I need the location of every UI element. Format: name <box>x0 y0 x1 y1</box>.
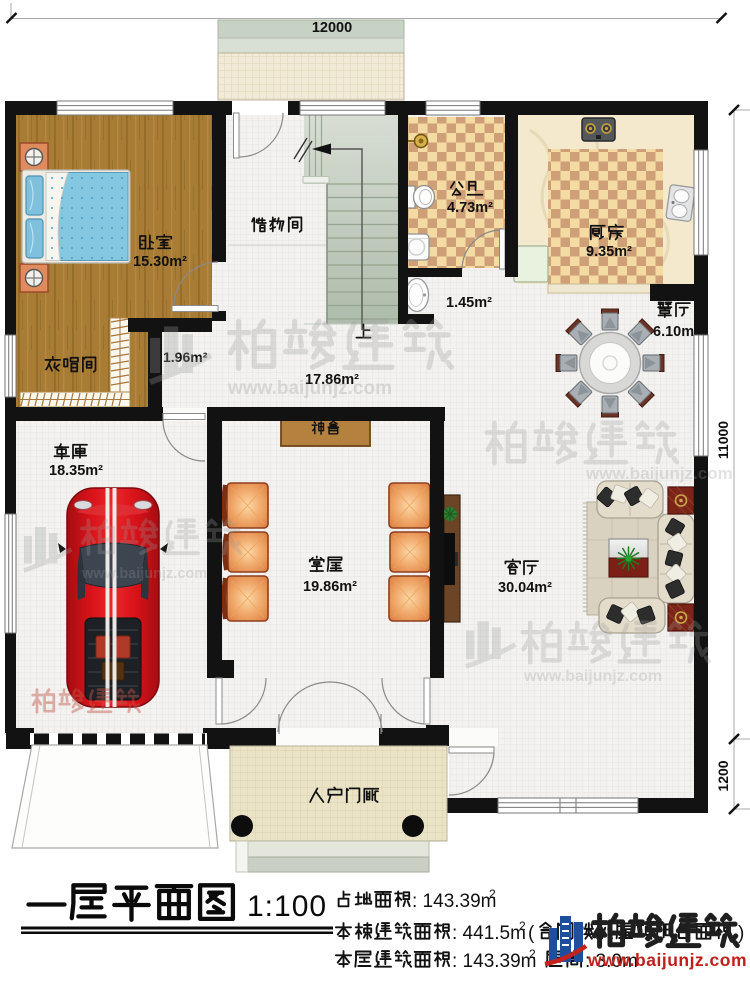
svg-text:): ) <box>738 923 744 944</box>
svg-text:4.73m²: 4.73m² <box>447 200 493 216</box>
svg-text:: 441.5m: : 441.5m <box>452 923 526 944</box>
svg-text:11000: 11000 <box>715 421 731 459</box>
svg-text:6.10m²: 6.10m² <box>653 324 699 340</box>
svg-text:2: 2 <box>489 887 496 901</box>
svg-text:: 143.39m: : 143.39m <box>412 891 497 912</box>
svg-text:9.35m²: 9.35m² <box>586 244 632 260</box>
svg-text:1:100: 1:100 <box>247 890 327 923</box>
svg-text:(: ( <box>528 923 535 944</box>
svg-text:www.baijunjz.com: www.baijunjz.com <box>587 950 747 970</box>
svg-text:www.baijunjz.com: www.baijunjz.com <box>523 668 662 685</box>
svg-text:1200: 1200 <box>715 760 731 791</box>
svg-text:19.86m²: 19.86m² <box>303 579 357 595</box>
svg-text:18.35m²: 18.35m² <box>49 463 103 479</box>
svg-text:30.04m²: 30.04m² <box>498 580 552 596</box>
svg-text:12000: 12000 <box>312 20 352 36</box>
svg-text:1.45m²: 1.45m² <box>446 295 492 311</box>
svg-text:www.baijunjz.com: www.baijunjz.com <box>227 378 392 399</box>
svg-text:15.30m²: 15.30m² <box>133 254 187 270</box>
svg-text:www.baijunjz.com: www.baijunjz.com <box>81 566 207 582</box>
svg-text:2: 2 <box>529 947 536 961</box>
svg-text:www.baijunjz.com: www.baijunjz.com <box>585 464 733 483</box>
svg-text:: 143.39m: : 143.39m <box>452 951 537 972</box>
svg-text:2: 2 <box>519 919 526 933</box>
